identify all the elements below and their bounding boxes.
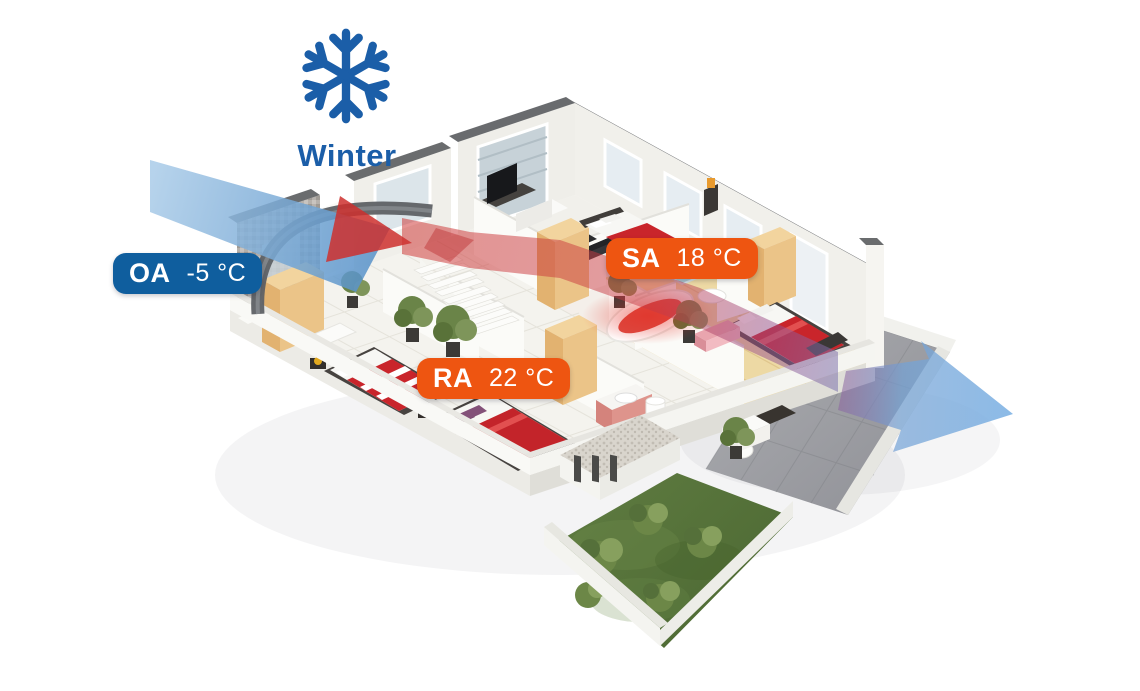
winter-label: Winter [272,138,422,174]
sa-code: SA [622,243,661,274]
ra-temperature: 22 °C [489,364,554,393]
oa-temperature: -5 °C [187,259,247,288]
sa-temperature: 18 °C [677,244,742,273]
oa-code: OA [129,258,171,289]
oa-badge: OA -5 °C [113,253,262,294]
sa-badge: SA 18 °C [606,238,758,279]
house-illustration [0,0,1140,691]
winter-ventilation-diagram: Winter OA -5 °C SA 18 °C RA 22 °C [0,0,1140,691]
ra-code: RA [433,363,473,394]
ra-badge: RA 22 °C [417,358,570,399]
snowflake-icon [295,24,397,128]
